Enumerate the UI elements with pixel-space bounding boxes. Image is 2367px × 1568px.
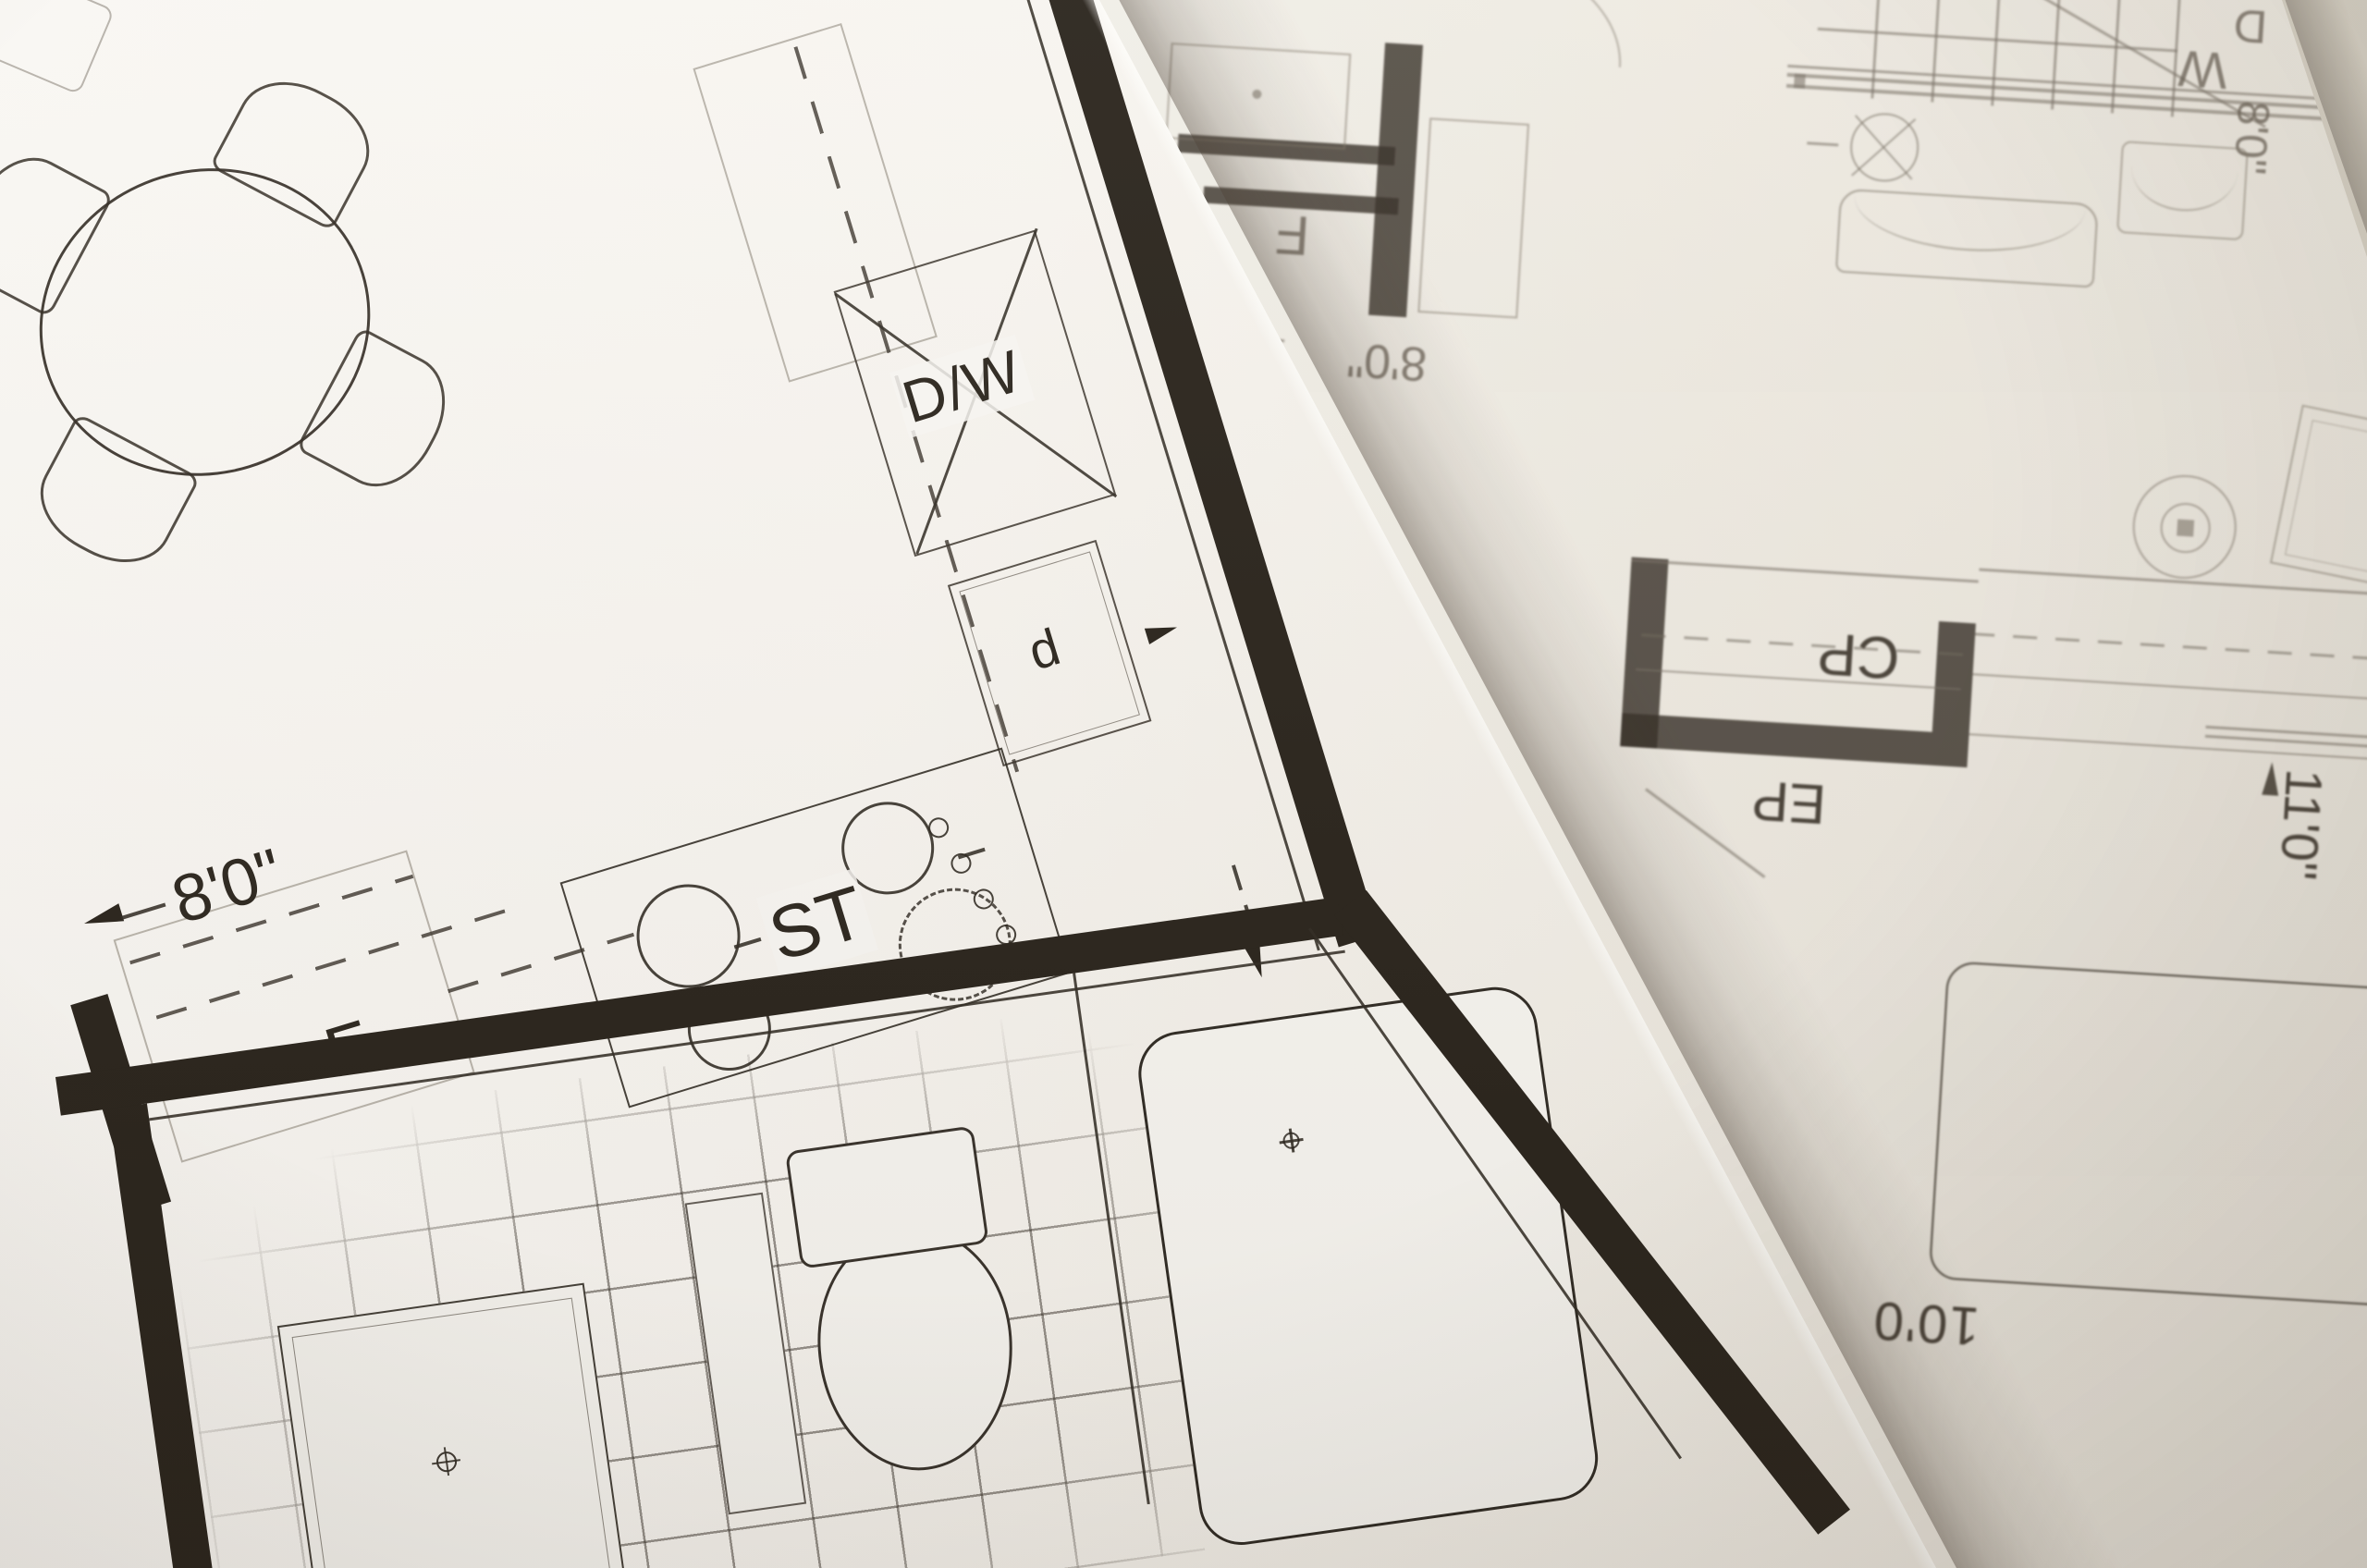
round-symbol-core: [2177, 520, 2194, 537]
closet2-line: [1969, 733, 2367, 760]
shower: [277, 1283, 635, 1568]
closet-shelf-line: [1636, 668, 1960, 690]
bench-curve: [1852, 196, 2086, 258]
closet-ep-label: EP: [1750, 768, 1828, 837]
tub-drain-icon: [1278, 1127, 1305, 1154]
grid-line: [1871, 0, 1883, 99]
washer-label: W: [2177, 39, 2229, 102]
dim-dash: [1232, 864, 1243, 890]
closet-cp-label: CP: [1815, 619, 1901, 692]
side-chair: [2116, 141, 2249, 240]
closet2-line: [1973, 673, 2367, 700]
nightstand-inner: [2285, 420, 2367, 573]
base-cabinet: d: [948, 540, 1152, 766]
shower-inner-line: [292, 1298, 620, 1568]
dim-arrow: [2262, 762, 2280, 796]
bathtub: [1133, 982, 1603, 1550]
grid-line: [2052, 0, 2063, 110]
dim-arrow-left: [81, 903, 124, 932]
light-tick: [1807, 141, 1838, 146]
closet-wall: [1932, 621, 1976, 734]
photo-of-blueprints: W D 8'0" CP EP: [0, 0, 2367, 1568]
closet2-dashed: [1975, 632, 2367, 660]
grid-line: [2111, 0, 2122, 113]
drain-circle: [1282, 1131, 1300, 1149]
dim-arrow-right: [1145, 619, 1180, 644]
dishwasher: D/W: [834, 230, 1117, 557]
closet-rod-dashed: [1637, 633, 1963, 655]
round-symbol: [2129, 472, 2239, 582]
nightstand: [2270, 405, 2367, 586]
closet-line: [1631, 559, 1978, 582]
grid-line: [1932, 0, 1943, 103]
ceiling-light-icon: [1848, 111, 1920, 183]
grid-line: [1992, 0, 2003, 106]
bench: [1835, 189, 2099, 288]
extra-chair-fragment: [0, 0, 115, 95]
dryer-label: D: [2232, 0, 2269, 54]
under-door-arc: [1445, 0, 1627, 67]
rug-outline: [1929, 961, 2367, 1309]
chair-curve: [2129, 165, 2238, 214]
light-x-line: [1851, 118, 1916, 176]
